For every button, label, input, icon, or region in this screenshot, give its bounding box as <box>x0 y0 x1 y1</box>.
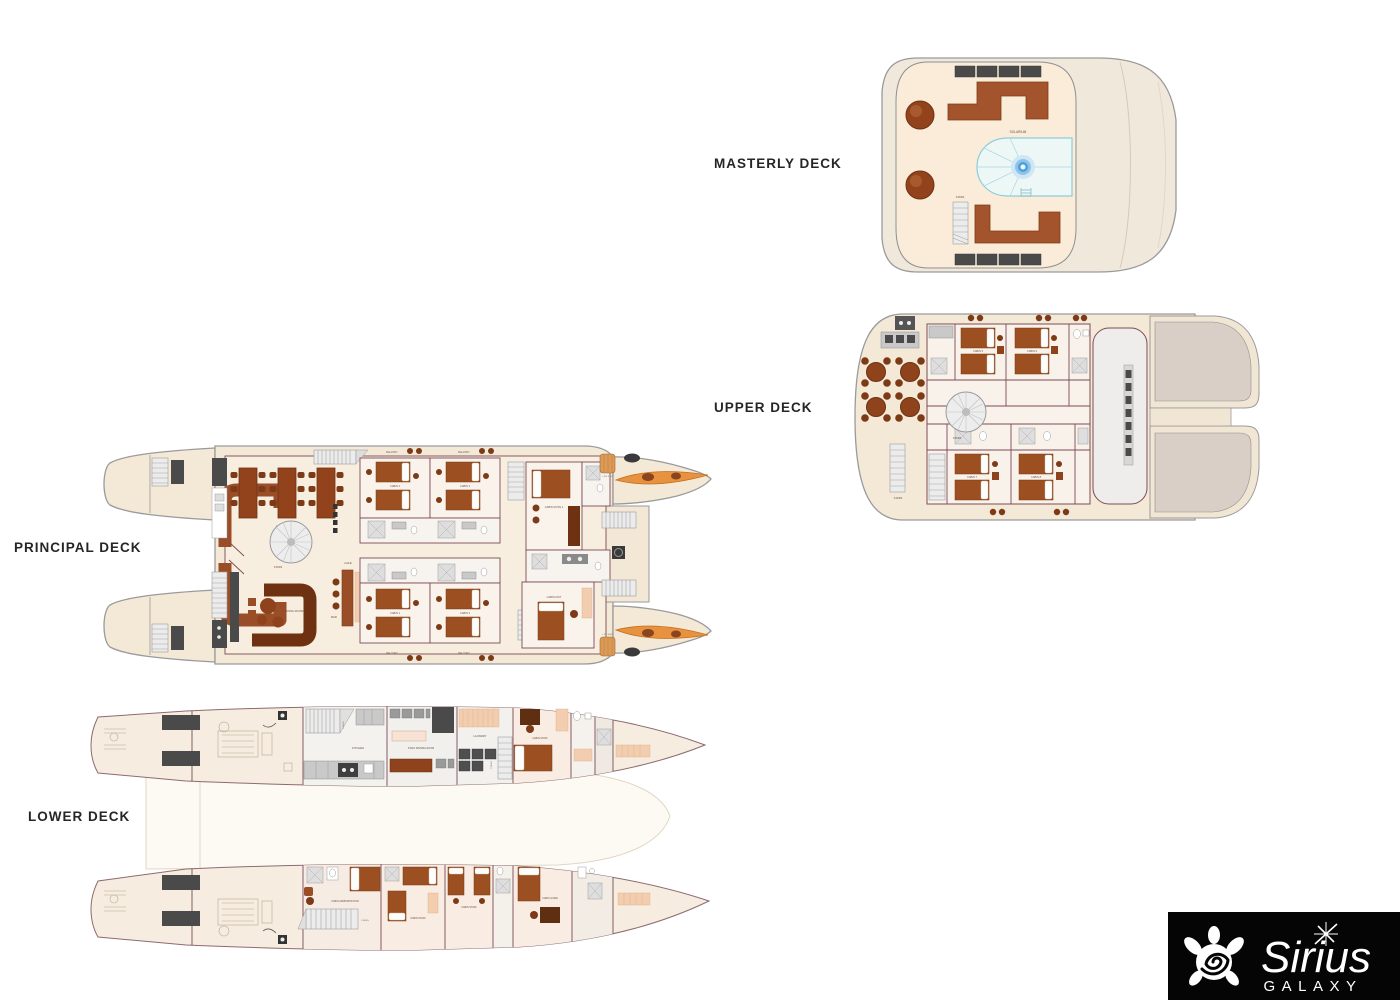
turtle-icon <box>1181 926 1247 988</box>
cabin6-label: CABIN 6 <box>1027 349 1038 353</box>
bar-label: BAR <box>331 615 337 619</box>
admin-stairs-label: STAIRS <box>361 919 369 922</box>
life-raft-label: LIFE RAFT <box>603 475 615 478</box>
kitchen-label: KITCHEN <box>352 746 364 750</box>
balcony-label: BALCONY <box>458 451 470 454</box>
masterly-stairs: STAIRS <box>953 196 968 244</box>
masterly-deck-plan: SOLARIUM STAIRS <box>858 42 1188 282</box>
upper-stairs-label: STAIRS <box>894 497 903 500</box>
upper-deck-plan: STAIRS CABIN 5 CABIN 6 <box>843 308 1263 526</box>
cabin1-label: CABIN 1 <box>390 611 401 615</box>
cabin5-label: CABIN 5 <box>973 349 984 353</box>
cabin-unit: CABIN UNIT <box>522 582 594 648</box>
upper-deck-title: UPPER DECK <box>714 400 813 415</box>
principal-stairs-label: STAIRS <box>274 566 283 569</box>
cabin-staff-label: CABIN STAFF <box>410 917 426 920</box>
brand-subtitle: GALAXY <box>1263 978 1362 995</box>
cabin-unit-label: CABIN UNIT <box>547 595 562 599</box>
cabin4-label: CABIN 4 <box>460 484 471 488</box>
upper-spiral-stairs-label: STAIRS <box>953 437 962 440</box>
laundry-label: LAUNDRY <box>473 734 486 738</box>
cabin8-label: CABIN 8 <box>1031 475 1042 479</box>
solarium-label: SOLARIUM <box>1010 130 1027 134</box>
balcony-label: BALCONY <box>386 652 398 655</box>
upper-skylight-panel <box>1093 328 1147 504</box>
balcony-label: BALCONY <box>386 451 398 454</box>
staff-dining-label: STAFF DINNING ROOM <box>408 747 434 750</box>
brand-logo: Sirius GALAXY <box>1168 912 1400 1000</box>
cabin2-label: CABIN 2 <box>390 484 401 488</box>
balcony-label: BALCONY <box>458 652 470 655</box>
suite-bathrooms <box>526 550 610 582</box>
upper-side-stairs: STAIRS <box>890 444 905 500</box>
kitchen-stairs-label: STAIRS <box>342 721 345 729</box>
lower-starboard-hull: CABIN ADMINISTRATOR STAIRS CABIN STAFF C… <box>91 863 709 953</box>
cabin-administrator-label: CABIN ADMINISTRATOR <box>331 900 359 903</box>
lower-deck-plan: STAIRS KITCHEN STAFF DINNING ROOM <box>88 703 718 953</box>
life-raft-label: LIFE RAFT <box>603 633 615 636</box>
lower-port-hull: STAIRS KITCHEN STAFF DINNING ROOM <box>91 705 705 789</box>
deck-plan-page: MASTERLY DECK UPPER DECK PRINCIPAL DECK … <box>0 0 1400 1000</box>
principal-deck-plan: DINING ROOM STAIRS LIVING ROOM CAFE <box>92 442 712 668</box>
laundry-stairs-label: STAIRS <box>490 761 493 769</box>
cabin-staff-label: CABIN STAFF <box>461 906 477 909</box>
jacuzzi <box>1011 155 1035 179</box>
cabin-suite1-label: CABIN SUITE 1 <box>545 505 564 509</box>
cabin-block-stairs <box>929 454 945 500</box>
cabin-guide-label: CABIN GUIDE <box>542 897 558 900</box>
living-room-label: LIVING ROOM <box>285 609 304 613</box>
cafe-label: CAFE <box>344 561 352 565</box>
masterly-deck-title: MASTERLY DECK <box>714 156 842 171</box>
masterly-stairs-label: STAIRS <box>956 196 965 199</box>
cabin3-label: CABIN 3 <box>460 611 471 615</box>
cabin-staff-label: CABIN STAFF <box>532 737 548 740</box>
cabin7-label: CABIN 7 <box>967 475 978 479</box>
brand-name: Sirius <box>1261 933 1371 982</box>
